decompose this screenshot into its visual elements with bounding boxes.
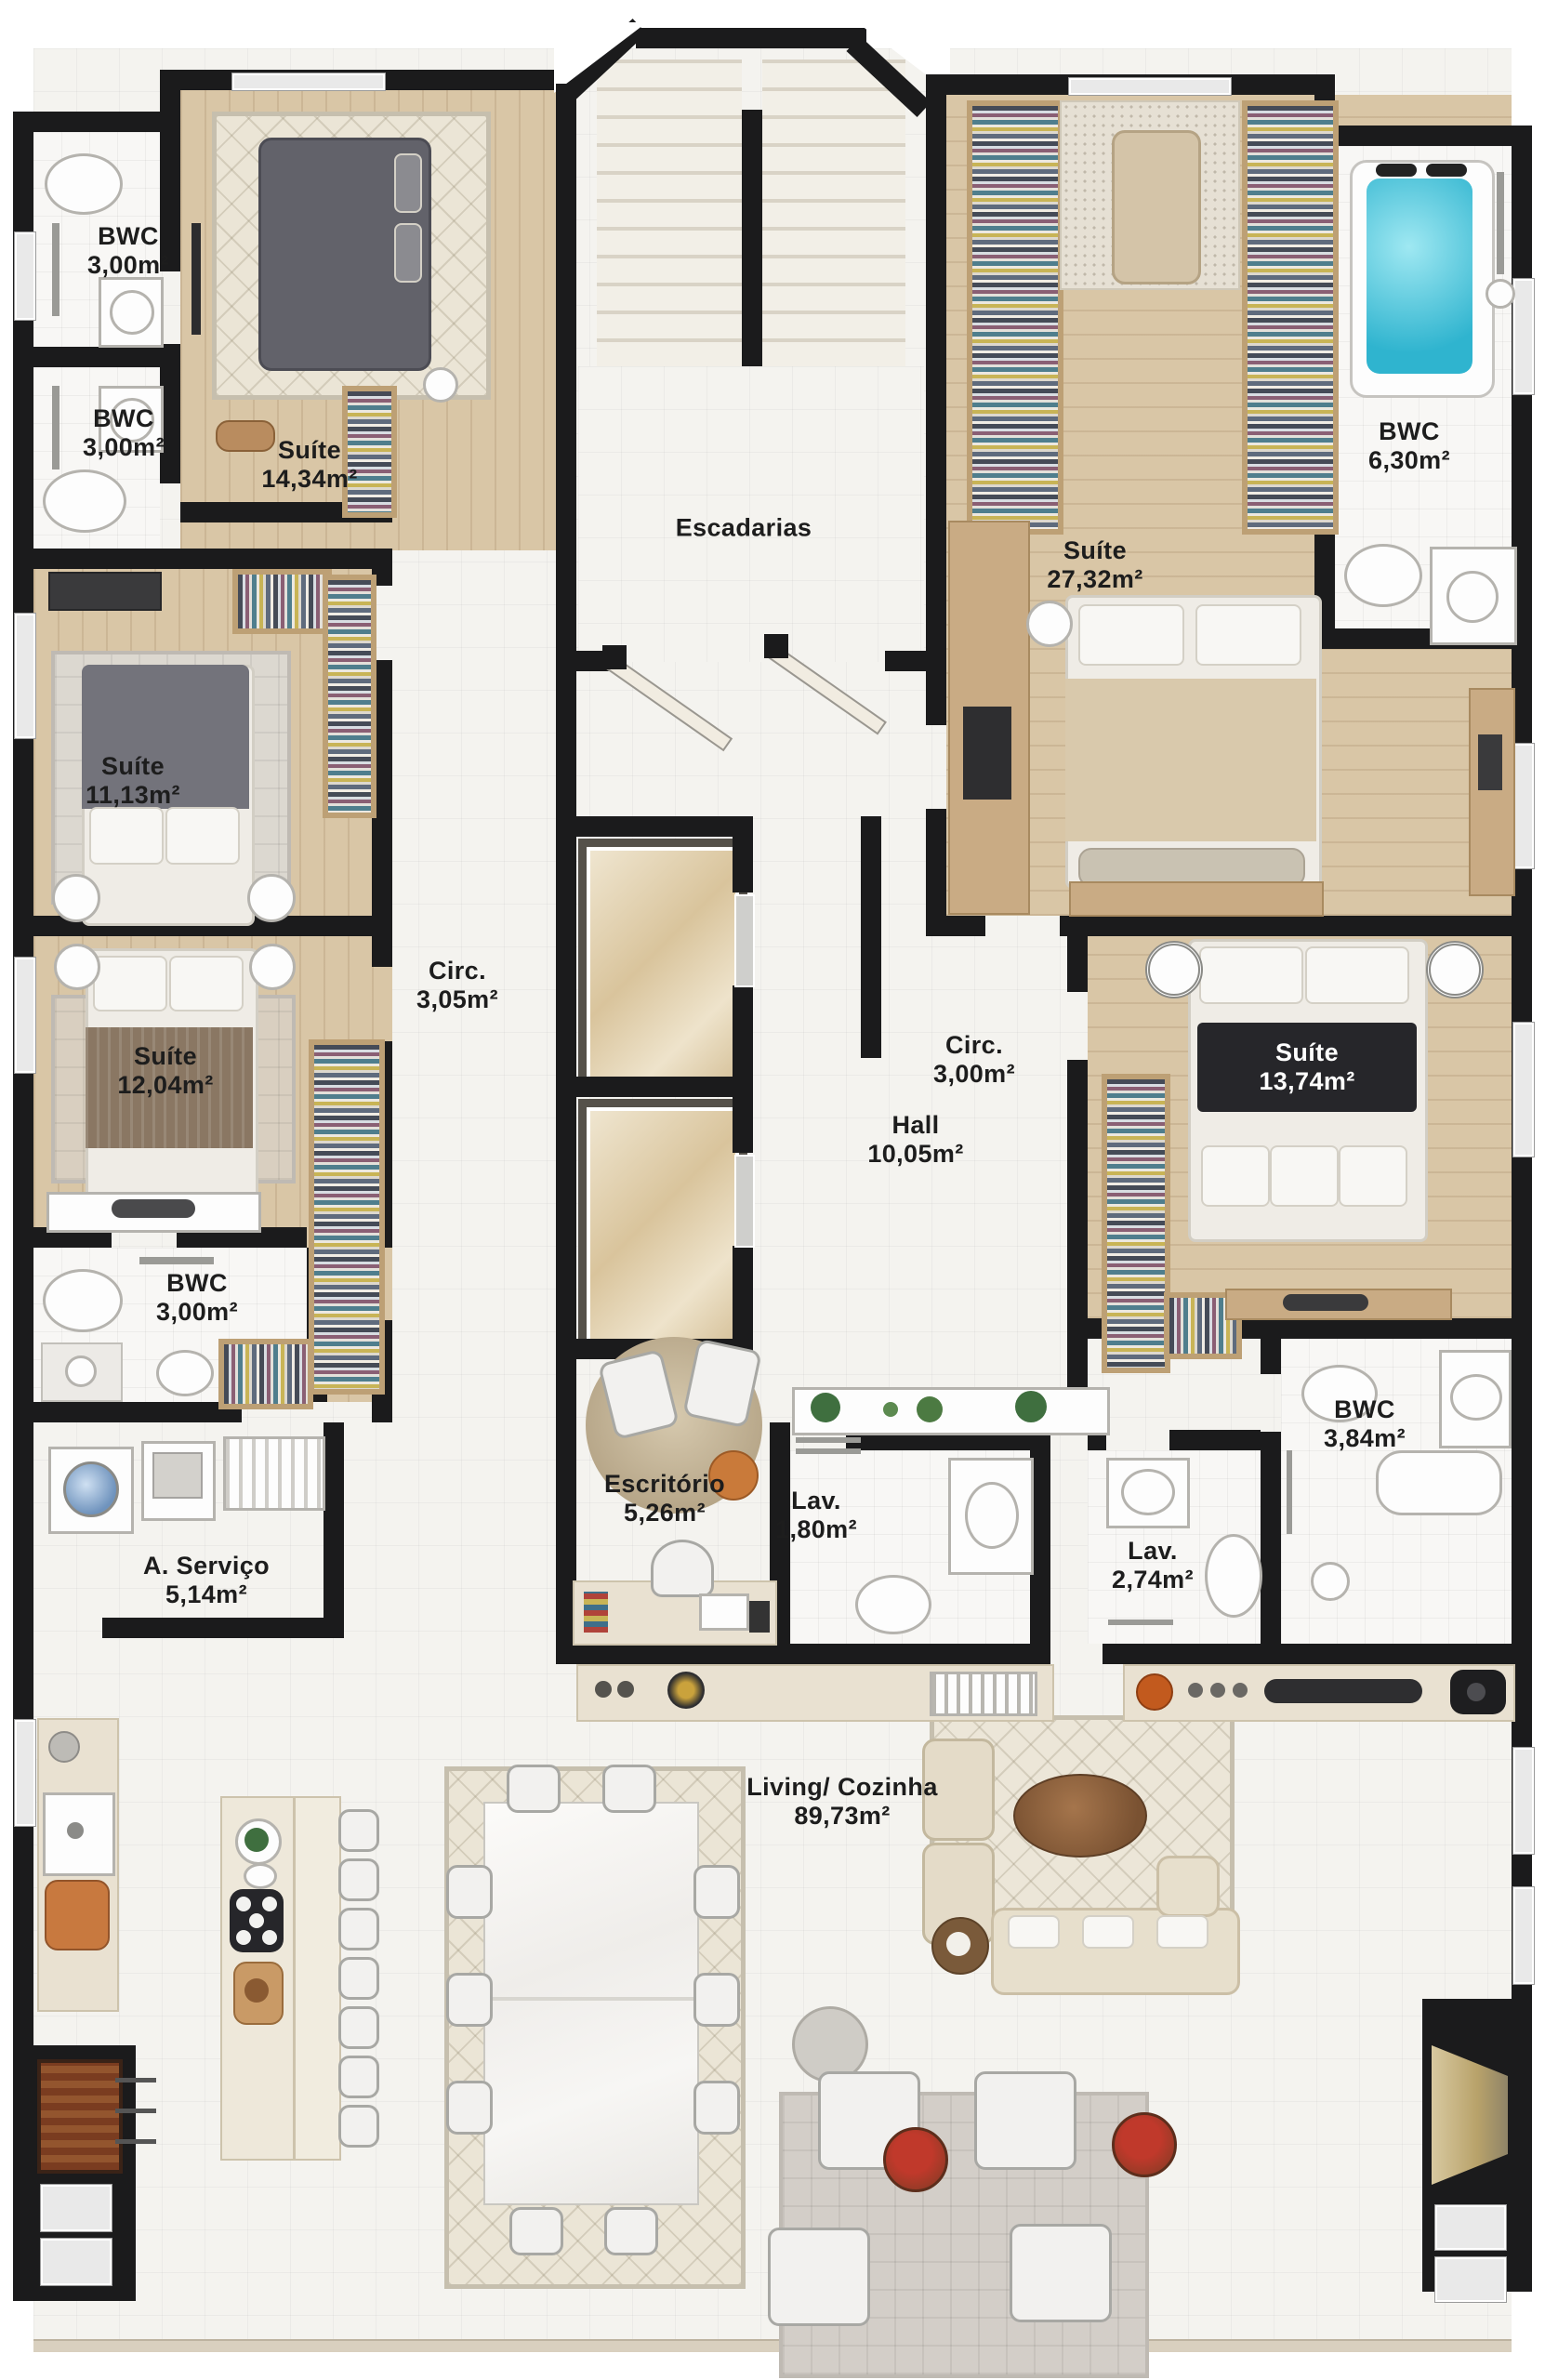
balcony-edge (33, 2339, 1512, 2352)
elevator-1 (578, 839, 747, 1091)
room-label-escritorio: Escritório 5,26m² (604, 1470, 725, 1527)
room-label-suite-27: Suíte 27,32m² (1047, 536, 1142, 594)
tv-panel (191, 223, 201, 335)
room-label-hall: Hall 10,05m² (867, 1111, 963, 1169)
room-label-bwc-3: BWC 3,00m² (156, 1269, 238, 1327)
wall (1261, 1318, 1281, 1374)
room-label-suite-12: Suíte 12,04m² (117, 1042, 213, 1100)
washer-drum (63, 1461, 119, 1517)
pillow (1078, 604, 1184, 666)
closet (967, 100, 1063, 535)
wall (13, 549, 392, 569)
wall (885, 651, 946, 671)
room-label-circ-300: Circ. 3,00m² (933, 1031, 1015, 1089)
stairs-flight (597, 59, 742, 366)
dining-chair (693, 1865, 740, 1919)
room-name: Circ. (416, 957, 498, 985)
kitchen-island-bar (294, 1796, 341, 2161)
shower-head (65, 1355, 97, 1387)
room-name: Lav. (1112, 1537, 1194, 1566)
books (584, 1592, 608, 1633)
towel-bar (1108, 1620, 1173, 1625)
knob (1233, 1683, 1248, 1698)
room-label-living-cozinha: Living/ Cozinha 89,73m² (746, 1773, 938, 1831)
pillow (89, 807, 164, 865)
bar-stool (338, 2006, 379, 2049)
plant (811, 1393, 840, 1422)
flower (946, 1932, 971, 1956)
jacuzzi-water (1367, 178, 1472, 374)
shower-bar (52, 223, 59, 316)
elevator-door (734, 1155, 755, 1248)
bed-cushion (1339, 1145, 1407, 1207)
pillow (169, 956, 244, 1011)
table-seam (483, 1997, 695, 2001)
room-area: 5,14m² (143, 1580, 270, 1609)
tray (112, 1199, 195, 1218)
plant (917, 1396, 943, 1422)
window (1435, 2205, 1506, 2250)
window (1513, 744, 1534, 868)
towel-bar (796, 1437, 861, 1443)
wall (733, 816, 753, 892)
bar-stool (338, 2056, 379, 2098)
burner (262, 1930, 277, 1945)
window (1069, 78, 1231, 95)
room-name: BWC (1324, 1395, 1406, 1424)
dining-chair (693, 1973, 740, 2027)
barbecue-grill (37, 2059, 123, 2174)
wall (33, 1402, 242, 1422)
burner (262, 1897, 277, 1911)
nightstand (249, 944, 296, 990)
room-name: Hall (867, 1111, 963, 1140)
room-label-a-servico: A. Serviço 5,14m² (143, 1552, 270, 1609)
flower-pot (1112, 2112, 1177, 2177)
skewer (115, 2078, 156, 2082)
plate (244, 1863, 277, 1889)
pillow (1199, 946, 1303, 1004)
wall (556, 1077, 753, 1097)
towel-bar (139, 1257, 214, 1264)
wall (636, 28, 866, 48)
duvet (1065, 679, 1316, 841)
nightstand (54, 944, 100, 990)
window (15, 958, 35, 1073)
pillow (93, 956, 167, 1011)
floor-plan: BWC 3,00m² BWC 3,00m² Suíte 14,34m² Esca… (0, 0, 1545, 2380)
pet-bowl (617, 1681, 634, 1698)
sink (110, 290, 154, 335)
headrest (1426, 164, 1467, 177)
room-name: BWC (83, 404, 165, 433)
burner (236, 1930, 251, 1945)
pillow (165, 807, 240, 865)
bread (244, 1978, 269, 2003)
toilet (855, 1575, 931, 1634)
plant (883, 1402, 898, 1417)
lounge-armchair (974, 2071, 1076, 2170)
desk-chair (651, 1540, 714, 1597)
window (1435, 2257, 1506, 2302)
room-name: Suíte (1047, 536, 1142, 565)
room-label-bwc-630: BWC 6,30m² (1368, 417, 1450, 475)
room-area: 3,00m² (156, 1298, 238, 1327)
dish-rack (930, 1672, 1037, 1716)
fruit-bowl (667, 1672, 705, 1709)
dining-chair (446, 2081, 493, 2135)
wall (13, 347, 180, 367)
knob (1210, 1683, 1225, 1698)
room-label-bwc-2: BWC 3,00m² (83, 404, 165, 462)
window (232, 73, 385, 90)
pouf (423, 367, 458, 403)
shower-ring (1486, 279, 1515, 309)
room-area: 3,00m² (87, 251, 169, 280)
wall (1103, 1644, 1532, 1664)
counter-sink (1264, 1679, 1422, 1703)
elevator-door (734, 894, 755, 987)
room-name: Escritório (604, 1470, 725, 1499)
room-name: BWC (156, 1269, 238, 1298)
mirror (1478, 734, 1502, 790)
room-name: Escadarias (676, 514, 812, 543)
room-area: 89,73m² (746, 1802, 938, 1831)
closet (309, 1039, 385, 1395)
shower-head (1311, 1562, 1350, 1601)
room-name: Suíte (1259, 1038, 1354, 1067)
wall (1169, 1430, 1261, 1450)
nightstand (1426, 941, 1484, 998)
plant (1015, 1391, 1047, 1422)
sink (965, 1482, 1019, 1549)
toilet (1344, 544, 1422, 607)
room-area: 3,05m² (416, 985, 498, 1014)
room-name: BWC (87, 222, 169, 251)
dining-table (483, 1802, 699, 2205)
burner (249, 1913, 264, 1928)
dining-chair (446, 1973, 493, 2027)
room-name: Living/ Cozinha (746, 1773, 938, 1802)
toilet (1205, 1534, 1262, 1618)
wall (556, 816, 753, 837)
door-hinge (602, 645, 627, 669)
plant (244, 1828, 269, 1852)
bar-stool (338, 1858, 379, 1901)
wall (556, 84, 576, 1664)
cutting-board (45, 1880, 110, 1950)
window (15, 1720, 35, 1826)
room-area: 2,74m² (1112, 1566, 1194, 1594)
wall (1060, 916, 1532, 936)
room-area: 3,00m² (83, 433, 165, 462)
window (41, 2185, 112, 2231)
room-label-circ-305: Circ. 3,05m² (416, 957, 498, 1014)
room-area: 1,80m² (775, 1515, 857, 1544)
towel-bar (796, 1448, 861, 1454)
sofa-pillow (1156, 1915, 1208, 1949)
toilet (43, 469, 126, 533)
sofa-pillow (1082, 1915, 1134, 1949)
room-label-bwc-1: BWC 3,00m² (87, 222, 169, 280)
room-name: Suíte (261, 436, 357, 465)
toilet (43, 1269, 123, 1332)
lounge-armchair (1010, 2224, 1112, 2322)
headrest (1376, 164, 1417, 177)
sink (1450, 1374, 1502, 1421)
pillow (394, 223, 422, 283)
room-label-lav-180: Lav. 1,80m² (775, 1487, 857, 1544)
nightstand (1145, 941, 1203, 998)
room-area: 10,05m² (867, 1140, 963, 1169)
wall (556, 1644, 1050, 1664)
dresser (1469, 688, 1515, 896)
laptop (699, 1593, 749, 1631)
room-name: Lav. (775, 1487, 857, 1515)
closet (323, 575, 376, 818)
room-area: 3,84m² (1324, 1424, 1406, 1453)
wall (102, 1618, 344, 1638)
window (41, 2239, 112, 2285)
window (15, 614, 35, 738)
dining-chair (507, 1765, 561, 1813)
dining-chair (446, 1865, 493, 1919)
wall (1067, 1060, 1088, 1430)
closet (232, 569, 332, 634)
bar-stool (338, 1957, 379, 2000)
room-area: 12,04m² (117, 1071, 213, 1100)
cooking-pot (1136, 1673, 1173, 1711)
flower-pot (883, 2127, 948, 2192)
window (1513, 1887, 1534, 1984)
room-name: BWC (1368, 417, 1450, 446)
drying-rack (223, 1436, 325, 1511)
wall (1314, 126, 1532, 146)
pillow (394, 153, 422, 213)
room-label-suite-14: Suíte 14,34m² (261, 436, 357, 494)
towel-bar (1497, 172, 1504, 274)
room-area: 11,13m² (86, 781, 180, 810)
window (1513, 279, 1534, 394)
sink (156, 1350, 214, 1396)
elevator-2 (578, 1099, 747, 1352)
sofa-pillow (1008, 1915, 1060, 1949)
tv-panel (963, 707, 1011, 800)
sink (1446, 571, 1499, 623)
dresser (1069, 881, 1324, 917)
dining-chair (602, 1765, 656, 1813)
knob (1188, 1683, 1203, 1698)
bar-stool (338, 1908, 379, 1950)
room-label-suite-11: Suíte 11,13m² (86, 752, 180, 810)
wall (1261, 1432, 1281, 1664)
wall (733, 985, 753, 1153)
sink (1121, 1469, 1175, 1515)
room-label-lav-274: Lav. 2,74m² (1112, 1537, 1194, 1594)
room-label-escadarias: Escadarias (676, 514, 812, 543)
closet (1102, 1074, 1170, 1373)
closet (1242, 100, 1339, 535)
wall (946, 916, 985, 936)
bathtub (1376, 1450, 1502, 1515)
pillow (1195, 604, 1301, 666)
room-label-bwc-384: BWC 3,84m² (1324, 1395, 1406, 1453)
room-area: 3,00m² (933, 1060, 1015, 1089)
room-name: Circ. (933, 1031, 1015, 1060)
pet-bowl (595, 1681, 612, 1698)
wall (926, 84, 946, 679)
wall (324, 1422, 344, 1638)
kettle (48, 1731, 80, 1763)
shower-bar (52, 386, 59, 469)
dining-chair (693, 2081, 740, 2135)
room-area: 5,26m² (604, 1499, 725, 1527)
bed-cushion (1201, 1145, 1270, 1207)
burner (236, 1897, 251, 1911)
room-area: 14,34m² (261, 465, 357, 494)
sofa-chaise (1156, 1856, 1220, 1917)
wall (926, 679, 946, 725)
lounge-armchair (768, 2228, 870, 2326)
stairs-flight (762, 59, 905, 366)
room-area: 6,30m² (1368, 446, 1450, 475)
laundry-basin (152, 1452, 203, 1499)
wall (1067, 936, 1088, 992)
nightstand (52, 874, 100, 922)
tv-console (48, 572, 162, 611)
ottoman-bench (1112, 130, 1201, 284)
skewer (115, 2139, 156, 2144)
window (1513, 1748, 1534, 1854)
nightstand (1026, 601, 1073, 647)
burner (1467, 1683, 1486, 1701)
pillow (1305, 946, 1409, 1004)
window (1513, 1023, 1534, 1157)
tray (1283, 1294, 1368, 1311)
room-name: A. Serviço (143, 1552, 270, 1580)
dining-chair (509, 2207, 563, 2255)
toilet (45, 153, 123, 215)
bed-cushion (1270, 1145, 1339, 1207)
dining-chair (604, 2207, 658, 2255)
towel-bar (1287, 1450, 1292, 1534)
nightstand (247, 874, 296, 922)
door-hinge (764, 634, 788, 658)
room-area: 13,74m² (1259, 1067, 1354, 1096)
skewer (115, 2109, 156, 2113)
coffee-table (1013, 1774, 1147, 1858)
linen-shelf (218, 1339, 313, 1409)
bar-stool (338, 1809, 379, 1852)
room-name: Suíte (117, 1042, 213, 1071)
bar-stool (338, 2105, 379, 2148)
room-area: 27,32m² (1047, 565, 1142, 594)
desk-lamp (749, 1601, 770, 1633)
window (15, 232, 35, 320)
stair-divider-wall (742, 110, 762, 389)
wall (861, 816, 881, 1058)
faucet (67, 1822, 84, 1839)
room-name: Suíte (86, 752, 180, 781)
wall (926, 809, 946, 936)
room-label-suite-1374: Suíte 13,74m² (1259, 1038, 1354, 1096)
wall (13, 112, 180, 132)
